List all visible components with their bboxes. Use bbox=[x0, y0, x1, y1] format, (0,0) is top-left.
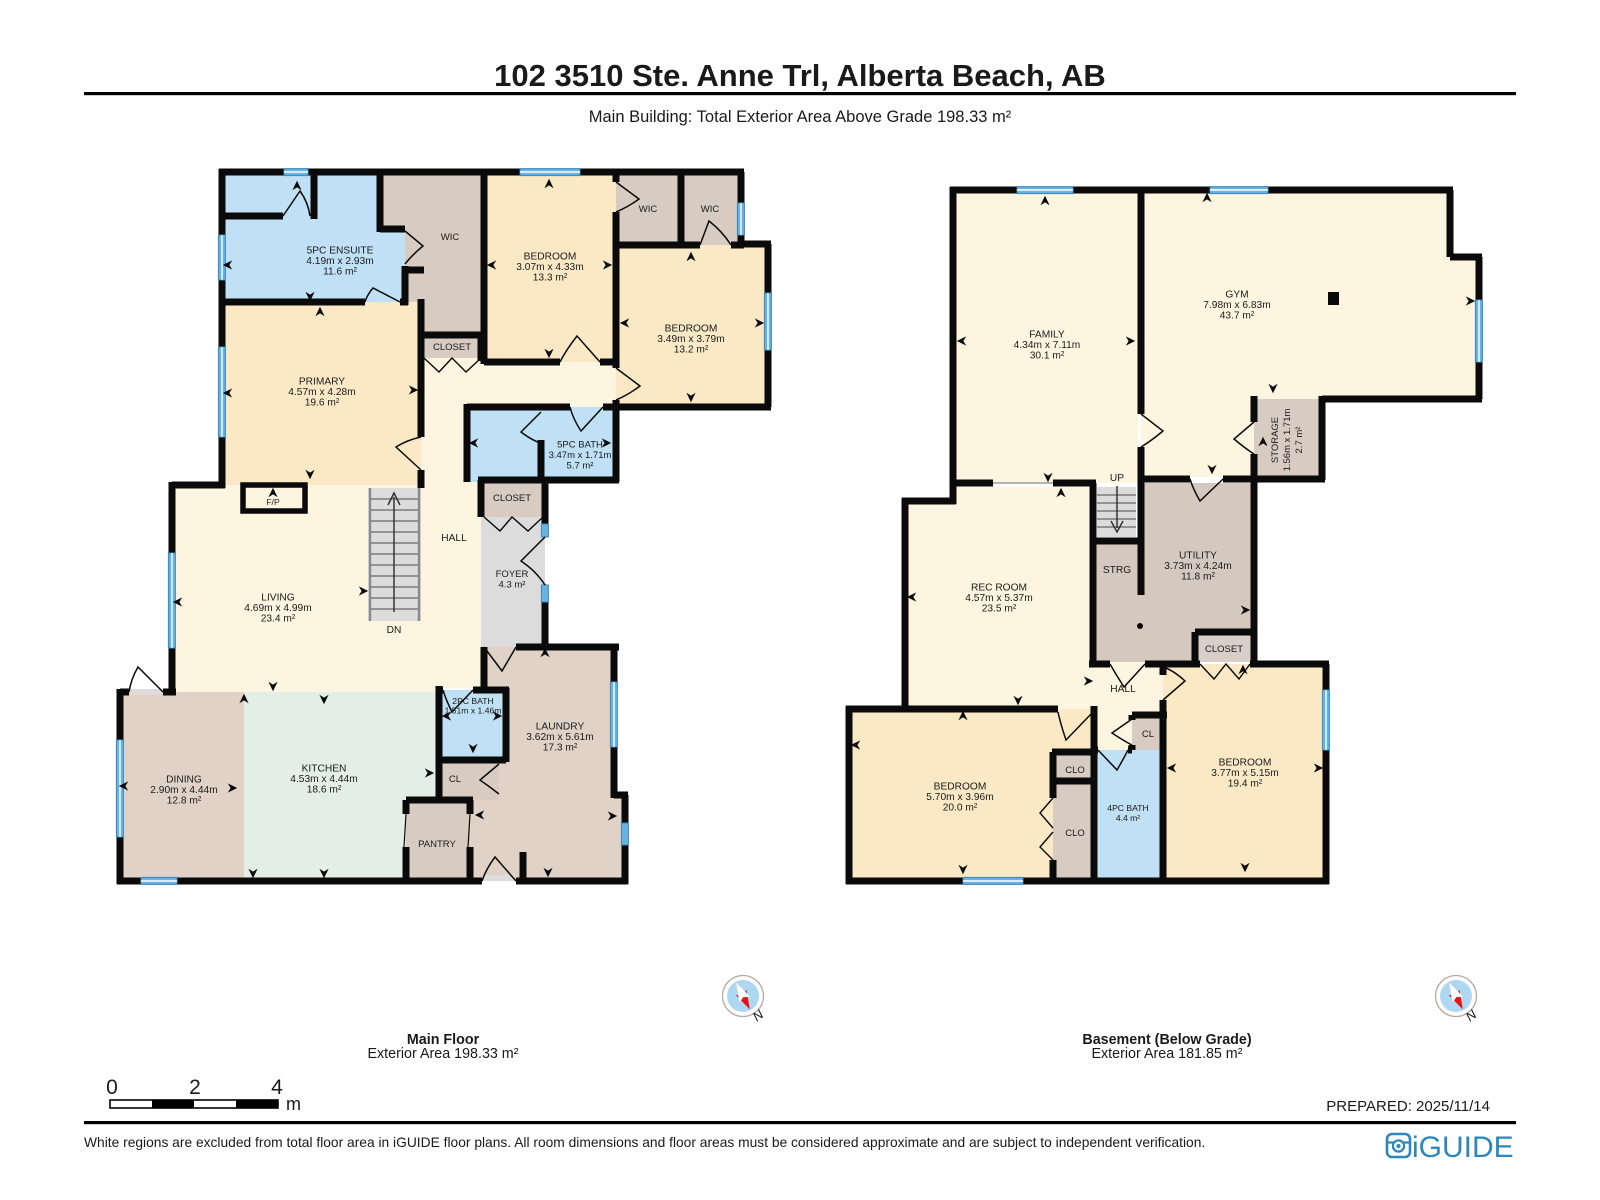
svg-text:STORAGE: STORAGE bbox=[1270, 417, 1281, 463]
svg-text:4.57m x 4.28m: 4.57m x 4.28m bbox=[288, 387, 355, 398]
svg-text:LIVING: LIVING bbox=[261, 593, 294, 604]
svg-text:DN: DN bbox=[387, 625, 402, 636]
svg-text:3.77m x 5.15m: 3.77m x 5.15m bbox=[1211, 768, 1278, 779]
svg-text:White regions are excluded fro: White regions are excluded from total fl… bbox=[84, 1135, 1205, 1150]
svg-text:13.2 m²: 13.2 m² bbox=[674, 345, 709, 356]
svg-text:4: 4 bbox=[271, 1076, 283, 1099]
svg-text:REC ROOM: REC ROOM bbox=[971, 583, 1027, 594]
svg-text:5PC BATH: 5PC BATH bbox=[557, 440, 603, 451]
svg-text:STRG: STRG bbox=[1103, 565, 1131, 576]
svg-text:CL: CL bbox=[449, 774, 461, 785]
svg-text:5.7 m²: 5.7 m² bbox=[567, 461, 594, 472]
svg-text:2: 2 bbox=[189, 1076, 201, 1099]
svg-text:20.0 m²: 20.0 m² bbox=[943, 803, 978, 814]
svg-text:CLOSET: CLOSET bbox=[493, 493, 531, 504]
svg-text:19.6 m²: 19.6 m² bbox=[305, 398, 340, 409]
svg-text:WIC: WIC bbox=[639, 204, 658, 215]
svg-text:4.4 m²: 4.4 m² bbox=[1116, 813, 1140, 823]
svg-text:19.4 m²: 19.4 m² bbox=[1228, 779, 1263, 790]
svg-text:UP: UP bbox=[1110, 473, 1124, 484]
svg-text:LAUNDRY: LAUNDRY bbox=[536, 722, 585, 733]
svg-text:DINING: DINING bbox=[166, 775, 202, 786]
svg-text:iGUIDE: iGUIDE bbox=[1412, 1131, 1514, 1164]
svg-text:GYM: GYM bbox=[1225, 290, 1248, 301]
svg-text:m: m bbox=[286, 1094, 301, 1114]
svg-text:3.62m x 5.61m: 3.62m x 5.61m bbox=[526, 732, 593, 743]
svg-text:5.70m x 3.96m: 5.70m x 3.96m bbox=[926, 792, 993, 803]
svg-text:BEDROOM: BEDROOM bbox=[1219, 758, 1272, 769]
svg-text:Exterior Area 198.33 m²: Exterior Area 198.33 m² bbox=[368, 1046, 519, 1062]
svg-text:2.90m x 4.44m: 2.90m x 4.44m bbox=[150, 785, 217, 796]
svg-text:UTILITY: UTILITY bbox=[1179, 551, 1217, 562]
svg-text:7.98m x 6.83m: 7.98m x 6.83m bbox=[1203, 300, 1270, 311]
svg-text:KITCHEN: KITCHEN bbox=[302, 764, 347, 775]
svg-text:WIC: WIC bbox=[441, 232, 460, 243]
svg-text:CL: CL bbox=[1142, 729, 1154, 740]
svg-text:1.56m x 1.71m: 1.56m x 1.71m bbox=[1282, 409, 1293, 472]
svg-text:3.73m x 4.24m: 3.73m x 4.24m bbox=[1164, 561, 1231, 572]
svg-text:17.3 m²: 17.3 m² bbox=[543, 743, 578, 754]
svg-text:CLO: CLO bbox=[1065, 828, 1085, 839]
svg-text:CLO: CLO bbox=[1065, 765, 1085, 776]
svg-text:3.07m x 4.33m: 3.07m x 4.33m bbox=[516, 262, 583, 273]
svg-text:PREPARED: 2025/11/14: PREPARED: 2025/11/14 bbox=[1326, 1098, 1490, 1115]
svg-text:Main Building: Total Exterior: Main Building: Total Exterior Area Above… bbox=[589, 108, 1012, 126]
svg-text:WIC: WIC bbox=[701, 204, 720, 215]
svg-text:CLOSET: CLOSET bbox=[433, 342, 471, 353]
svg-text:13.3 m²: 13.3 m² bbox=[533, 273, 568, 284]
svg-text:11.6 m²: 11.6 m² bbox=[323, 267, 357, 278]
svg-text:18.6 m²: 18.6 m² bbox=[307, 785, 342, 796]
svg-text:BEDROOM: BEDROOM bbox=[665, 324, 718, 335]
svg-text:HALL: HALL bbox=[441, 533, 467, 544]
svg-text:PANTRY: PANTRY bbox=[418, 839, 456, 850]
svg-text:11.8 m²: 11.8 m² bbox=[1181, 572, 1215, 583]
svg-text:5PC ENSUITE: 5PC ENSUITE bbox=[307, 246, 374, 257]
svg-text:4.53m x 4.44m: 4.53m x 4.44m bbox=[290, 774, 357, 785]
svg-text:2.7 m²: 2.7 m² bbox=[1294, 427, 1305, 454]
svg-text:4PC BATH: 4PC BATH bbox=[1107, 803, 1148, 813]
svg-text:102 3510 Ste. Anne Trl, Albert: 102 3510 Ste. Anne Trl, Alberta Beach, A… bbox=[494, 58, 1106, 93]
svg-text:3.47m x 1.71m: 3.47m x 1.71m bbox=[549, 450, 612, 461]
svg-text:BEDROOM: BEDROOM bbox=[934, 782, 987, 793]
svg-text:43.7 m²: 43.7 m² bbox=[1220, 311, 1255, 322]
svg-text:23.5 m²: 23.5 m² bbox=[982, 604, 1017, 615]
svg-text:4.57m x 5.37m: 4.57m x 5.37m bbox=[965, 593, 1032, 604]
svg-text:4.69m x 4.99m: 4.69m x 4.99m bbox=[244, 603, 311, 614]
svg-text:30.1 m²: 30.1 m² bbox=[1030, 351, 1065, 362]
svg-text:FOYER: FOYER bbox=[496, 569, 529, 580]
svg-text:CLOSET: CLOSET bbox=[1205, 644, 1243, 655]
svg-text:FAMILY: FAMILY bbox=[1029, 330, 1065, 341]
svg-text:3.49m x 3.79m: 3.49m x 3.79m bbox=[657, 334, 724, 345]
svg-text:4.34m x 7.11m: 4.34m x 7.11m bbox=[1014, 340, 1081, 351]
svg-text:23.4 m²: 23.4 m² bbox=[261, 614, 296, 625]
svg-text:F/P: F/P bbox=[266, 497, 280, 507]
svg-text:12.8 m²: 12.8 m² bbox=[167, 796, 202, 807]
svg-text:0: 0 bbox=[106, 1076, 118, 1099]
svg-text:Exterior Area 181.85 m²: Exterior Area 181.85 m² bbox=[1092, 1046, 1243, 1062]
svg-text:PRIMARY: PRIMARY bbox=[299, 377, 345, 388]
svg-text:BEDROOM: BEDROOM bbox=[524, 252, 577, 263]
svg-text:4.3 m²: 4.3 m² bbox=[499, 580, 526, 591]
svg-text:4.19m x 2.93m: 4.19m x 2.93m bbox=[306, 256, 373, 267]
